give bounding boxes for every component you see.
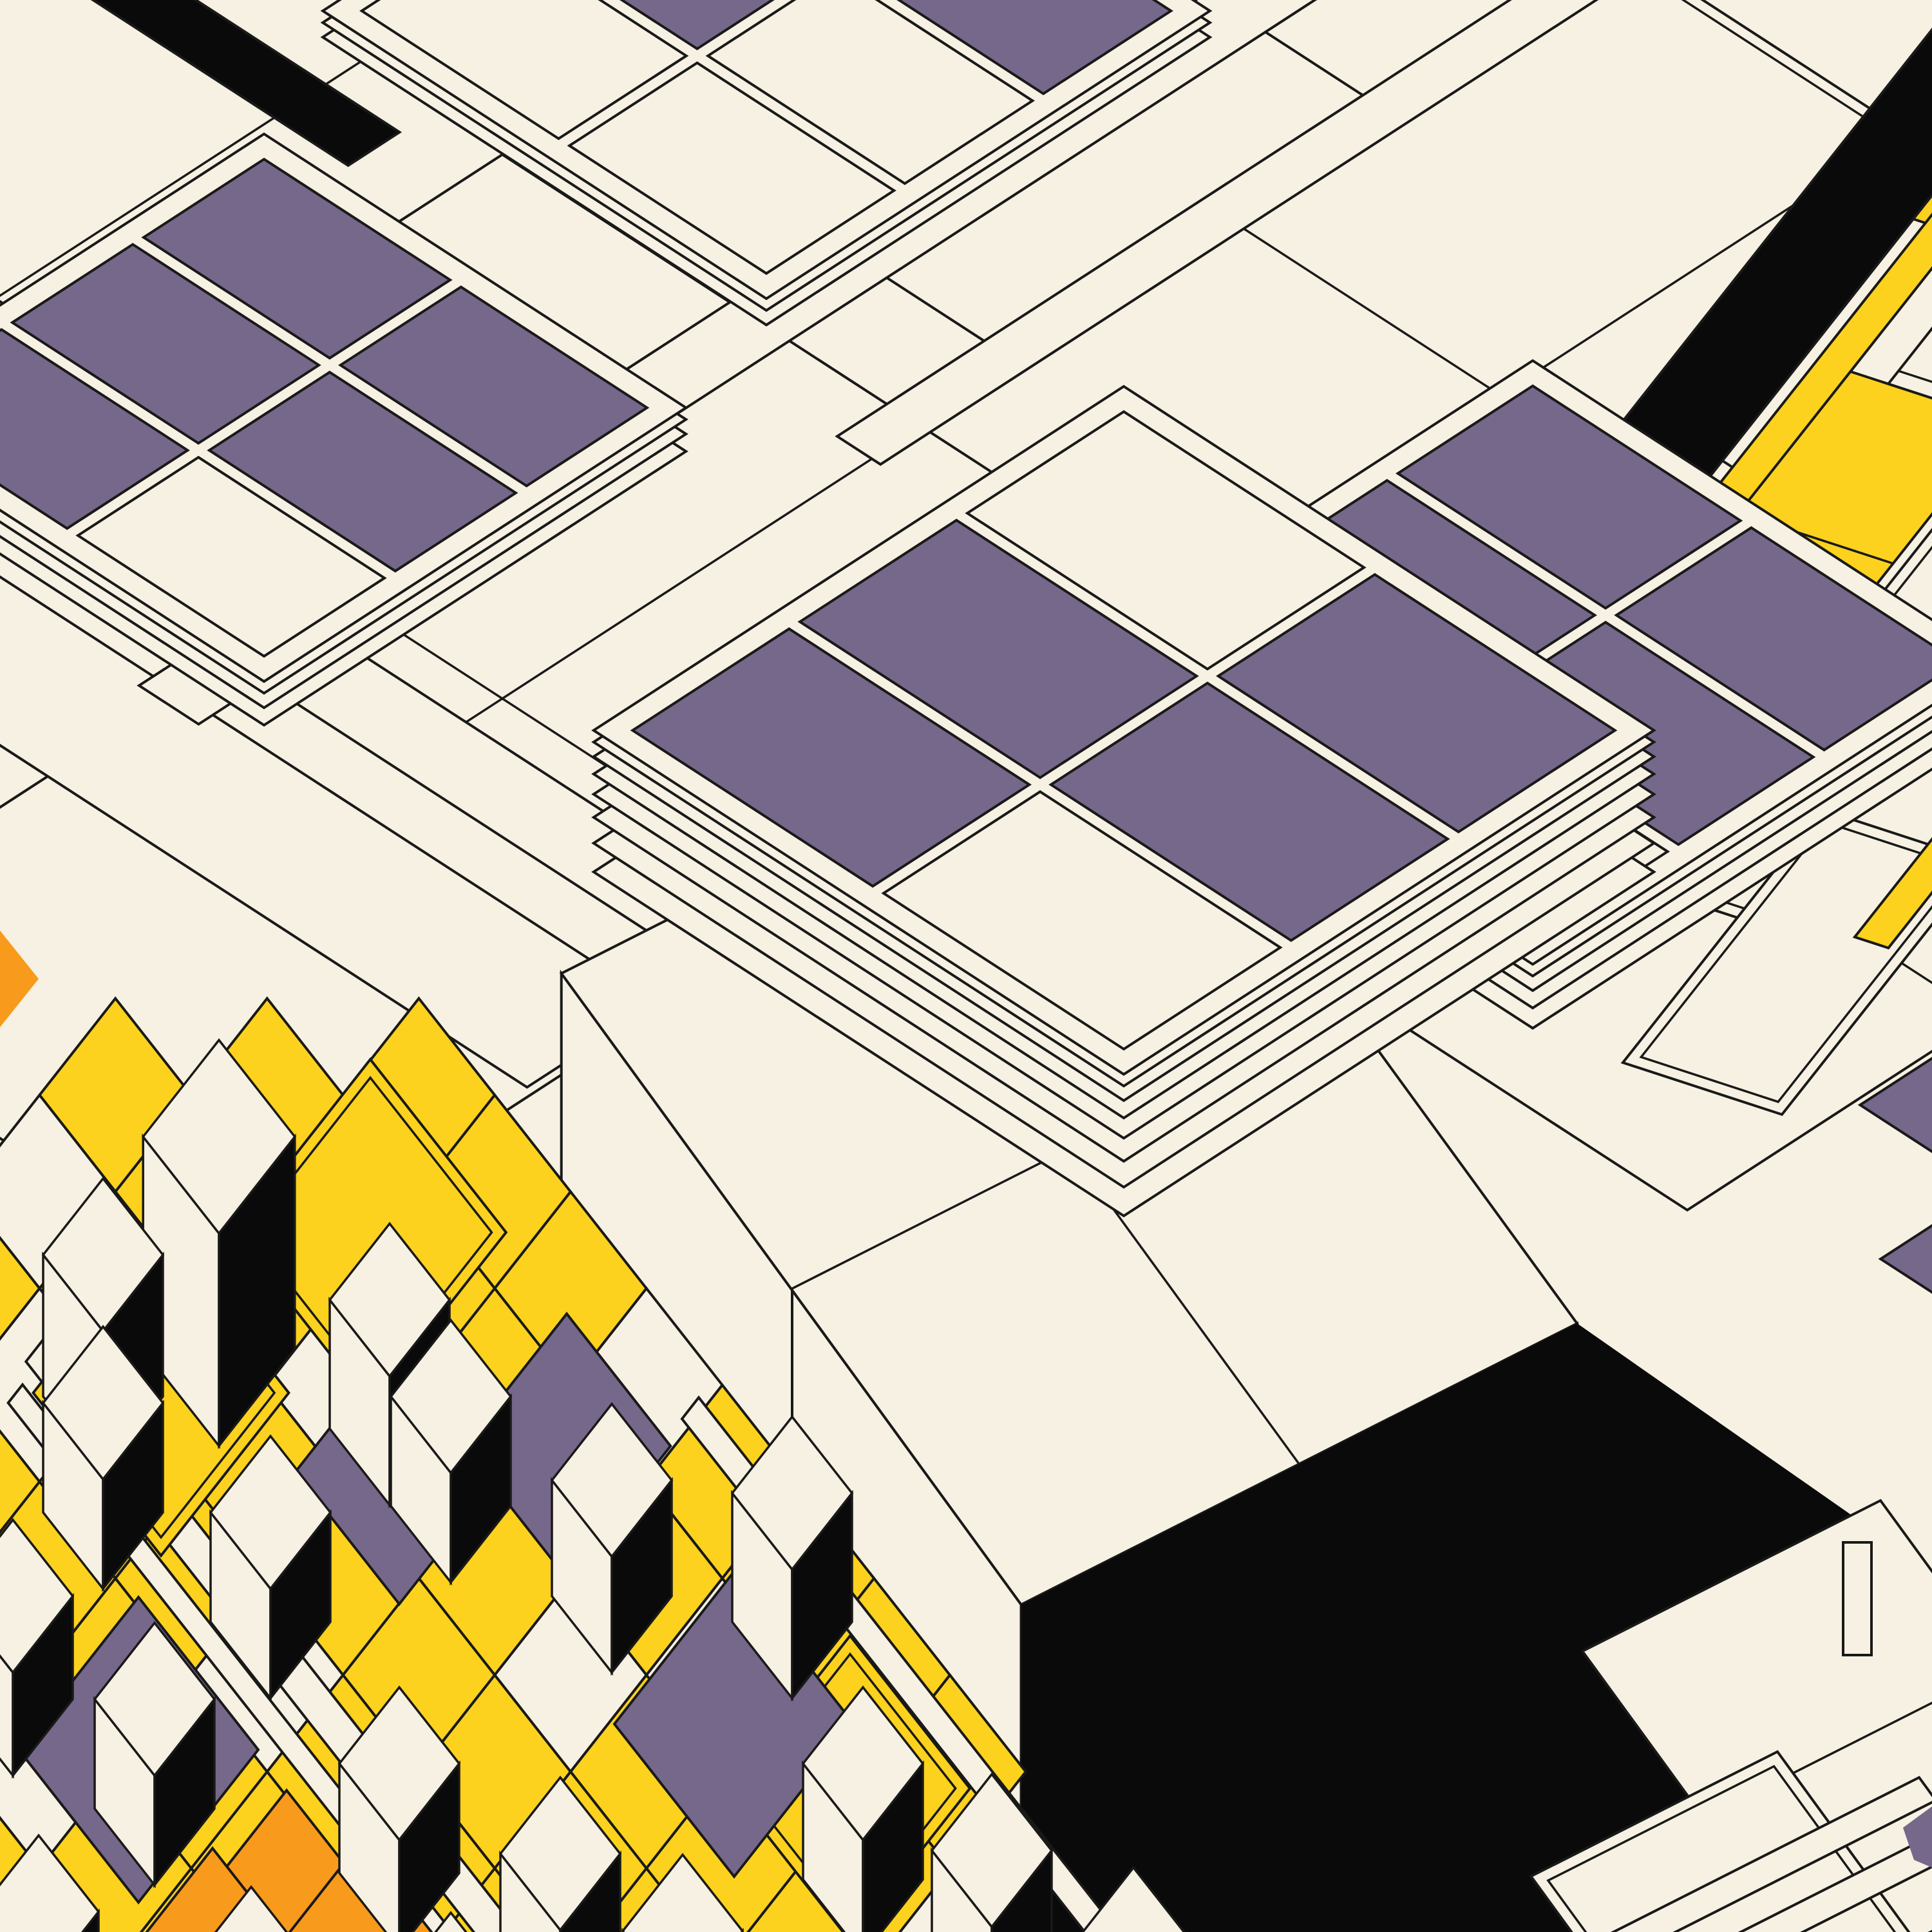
corner-vertical-strip (1843, 1542, 1871, 1655)
artwork-canvas (0, 0, 1932, 1932)
generative-isometric-artwork (0, 0, 1932, 1932)
